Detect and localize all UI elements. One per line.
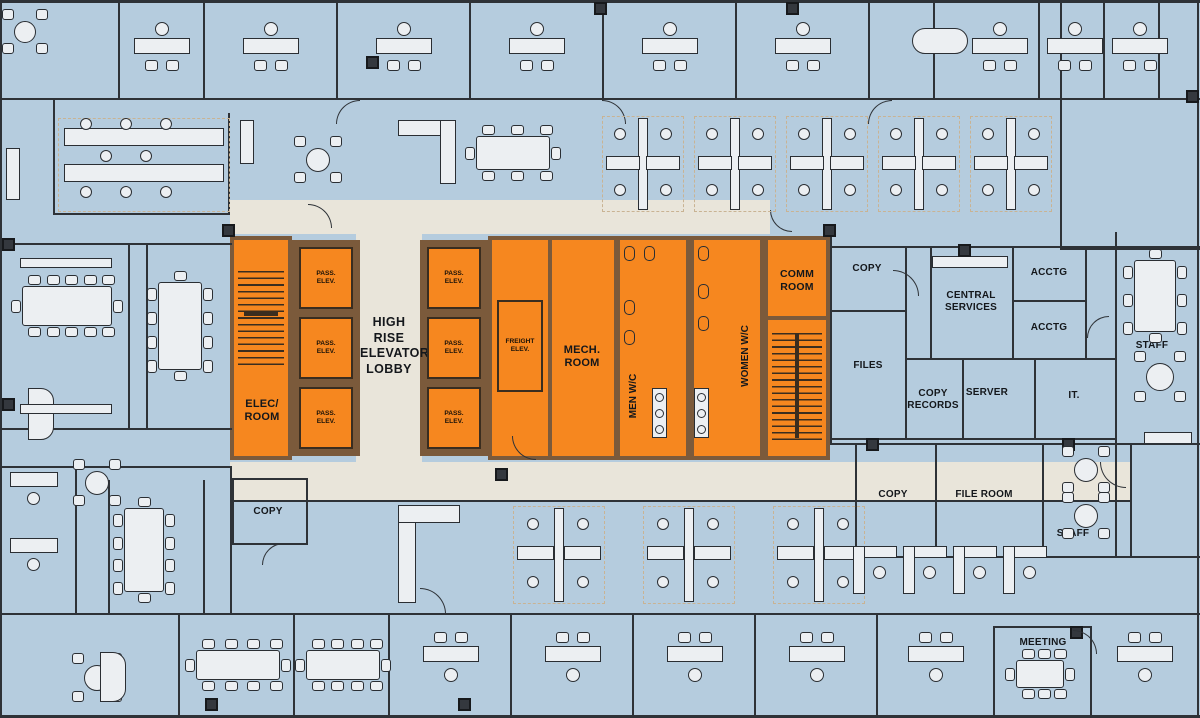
sink-icon — [697, 393, 706, 402]
wall — [735, 0, 737, 98]
wall — [336, 0, 338, 98]
conference-table-icon — [124, 508, 164, 592]
round-table-icon — [1074, 504, 1098, 528]
chair-icon — [203, 360, 213, 373]
chair-icon — [786, 60, 799, 71]
toilet-icon — [698, 246, 709, 261]
chair-icon — [145, 60, 158, 71]
chair-icon — [72, 653, 84, 664]
chair-icon — [185, 659, 195, 672]
wall — [754, 613, 756, 716]
p-desk-icon — [28, 388, 54, 440]
chair-icon — [1149, 632, 1162, 643]
conference-table-icon — [196, 650, 280, 680]
chair-icon — [138, 593, 151, 603]
freight-elevator: FREIGHT ELEV. — [497, 300, 543, 392]
chair-icon — [787, 576, 799, 588]
chair-icon — [203, 288, 213, 301]
wall — [868, 0, 870, 98]
desk-icon — [830, 156, 864, 170]
column-icon — [958, 244, 971, 257]
passenger-elevator: PASS. ELEV. — [299, 387, 353, 449]
table-icon — [912, 28, 968, 54]
bench-desk-icon — [64, 128, 224, 146]
passenger-elevator-label: PASS. ELEV. — [441, 410, 467, 426]
chair-icon — [1038, 649, 1051, 659]
desk-icon — [10, 472, 58, 487]
chair-icon — [798, 184, 810, 196]
chair-icon — [312, 639, 325, 649]
chair-icon — [331, 681, 344, 691]
chair-icon — [2, 43, 14, 54]
wall — [1085, 246, 1087, 358]
chair-icon — [1062, 492, 1074, 503]
chair-icon — [1174, 391, 1186, 402]
mech-room-label: MECH. ROOM — [560, 344, 604, 370]
chair-icon — [752, 128, 764, 140]
bench-desk-icon — [64, 164, 224, 182]
wall — [905, 358, 1117, 360]
wall — [55, 213, 230, 215]
wall — [128, 243, 130, 430]
chair-icon — [520, 60, 533, 71]
chair-icon — [1004, 60, 1017, 71]
reception-desk-icon — [398, 505, 460, 523]
door-arc-icon — [1087, 316, 1109, 338]
passenger-elevator: PASS. ELEV. — [427, 387, 481, 449]
conference-table-icon — [22, 286, 112, 326]
chair-icon — [1123, 60, 1136, 71]
chair-icon — [73, 495, 85, 506]
chair-icon — [165, 537, 175, 550]
chair-icon — [1023, 566, 1036, 579]
acctg-upper-label: ACCTG — [1022, 267, 1076, 279]
chair-icon — [351, 681, 364, 691]
desk-icon — [853, 546, 865, 594]
desk-icon — [243, 38, 299, 54]
chair-icon — [1177, 294, 1187, 307]
chair-icon — [566, 668, 580, 682]
door-arc-icon — [336, 100, 360, 124]
chair-icon — [275, 60, 288, 71]
chair-icon — [800, 632, 813, 643]
sink-icon — [697, 425, 706, 434]
comm-room-label: COMM ROOM — [774, 268, 820, 293]
chair-icon — [203, 312, 213, 325]
chair-icon — [796, 22, 810, 36]
cubicle-spine-icon — [684, 508, 694, 602]
server-label: SERVER — [965, 387, 1009, 399]
chair-icon — [370, 681, 383, 691]
chair-icon — [72, 691, 84, 702]
toilet-icon — [624, 300, 635, 315]
chair-icon — [1058, 60, 1071, 71]
chair-icon — [983, 60, 996, 71]
conference-table-icon — [1016, 660, 1064, 688]
wall — [830, 443, 1200, 445]
wall — [203, 0, 205, 98]
sink-icon — [655, 425, 664, 434]
chair-icon — [73, 459, 85, 470]
desk-icon — [376, 38, 432, 54]
wall — [510, 613, 512, 716]
chair-icon — [109, 495, 121, 506]
chair-icon — [312, 681, 325, 691]
chair-icon — [155, 22, 169, 36]
conference-table-icon — [158, 282, 202, 370]
chair-icon — [109, 459, 121, 470]
wall — [0, 0, 2, 718]
chair-icon — [1022, 649, 1035, 659]
chair-icon — [27, 558, 40, 571]
passenger-elevator: PASS. ELEV. — [299, 247, 353, 309]
cubicle-spine-icon — [554, 508, 564, 602]
chair-icon — [381, 659, 391, 672]
chair-icon — [1062, 446, 1074, 457]
copy-left-label: COPY — [246, 506, 290, 518]
chair-icon — [482, 125, 495, 135]
chair-icon — [165, 514, 175, 527]
chair-icon — [113, 514, 123, 527]
column-icon — [222, 224, 235, 237]
passenger-elevator-label: PASS. ELEV. — [313, 410, 339, 426]
freight-elevator-label: FREIGHT ELEV. — [504, 338, 536, 354]
chair-icon — [113, 537, 123, 550]
column-icon — [823, 224, 836, 237]
door-arc-icon — [262, 543, 284, 565]
desk-icon — [1047, 38, 1103, 54]
chair-icon — [65, 327, 78, 337]
toilet-icon — [624, 330, 635, 345]
wall — [935, 443, 937, 558]
desk-icon — [667, 646, 723, 662]
column-icon — [786, 2, 799, 15]
chair-icon — [936, 128, 948, 140]
wall — [930, 246, 932, 358]
desk-icon — [972, 38, 1028, 54]
chair-icon — [527, 518, 539, 530]
wall — [0, 243, 232, 245]
chair-icon — [202, 639, 215, 649]
copy-records-label: COPY RECORDS — [904, 388, 962, 412]
chair-icon — [1134, 391, 1146, 402]
desk-icon — [642, 38, 698, 54]
copy-upper-label: COPY — [845, 263, 889, 275]
conference-table-icon — [1134, 260, 1176, 332]
desk-icon — [606, 156, 640, 170]
chair-icon — [370, 639, 383, 649]
credenza-icon — [20, 404, 112, 414]
chair-icon — [455, 632, 468, 643]
chair-icon — [1054, 689, 1067, 699]
chair-icon — [165, 559, 175, 572]
chair-icon — [890, 184, 902, 196]
desk-icon — [694, 546, 731, 560]
wall — [178, 613, 180, 716]
desk-icon — [953, 546, 965, 594]
chair-icon — [657, 576, 669, 588]
wall — [0, 613, 1200, 615]
chair-icon — [84, 327, 97, 337]
chair-icon — [1062, 528, 1074, 539]
desk-icon — [903, 546, 915, 594]
chair-icon — [225, 639, 238, 649]
column-icon — [2, 398, 15, 411]
chair-icon — [1123, 294, 1133, 307]
desk-icon — [1112, 38, 1168, 54]
chair-icon — [844, 184, 856, 196]
credenza-icon — [20, 258, 112, 268]
chair-icon — [147, 312, 157, 325]
chair-icon — [387, 60, 400, 71]
chair-icon — [397, 22, 411, 36]
passenger-elevator-label: PASS. ELEV. — [441, 340, 467, 356]
desk-icon — [646, 156, 680, 170]
chair-icon — [940, 632, 953, 643]
chair-icon — [36, 43, 48, 54]
meeting-label: MEETING — [1012, 637, 1074, 649]
chair-icon — [120, 186, 132, 198]
chair-icon — [923, 566, 936, 579]
chair-icon — [247, 639, 260, 649]
chair-icon — [444, 668, 458, 682]
chair-icon — [1054, 649, 1067, 659]
elec-room-label: ELEC/ ROOM — [242, 398, 282, 424]
chair-icon — [120, 118, 132, 130]
chair-icon — [807, 60, 820, 71]
wall — [832, 310, 907, 312]
chair-icon — [540, 171, 553, 181]
chair-icon — [1098, 446, 1110, 457]
chair-icon — [1138, 668, 1152, 682]
round-table-icon — [306, 148, 330, 172]
wall — [1130, 443, 1132, 558]
wall — [232, 543, 308, 545]
wall — [118, 0, 120, 98]
chair-icon — [294, 172, 306, 183]
floor-plan: ELEC/ ROOM HIGH RISE ELEVATOR LOBBY FREI… — [0, 0, 1200, 718]
desk-icon — [882, 156, 916, 170]
chair-icon — [707, 518, 719, 530]
chair-icon — [1079, 60, 1092, 71]
wall — [1115, 232, 1117, 558]
chair-icon — [1177, 266, 1187, 279]
chair-icon — [993, 22, 1007, 36]
chair-icon — [84, 275, 97, 285]
conference-table-icon — [306, 650, 380, 680]
chair-icon — [660, 184, 672, 196]
chair-icon — [254, 60, 267, 71]
chair-icon — [873, 566, 886, 579]
wall — [53, 98, 55, 215]
desk-icon — [10, 538, 58, 553]
passenger-elevator: PASS. ELEV. — [299, 317, 353, 379]
column-icon — [458, 698, 471, 711]
chair-icon — [890, 128, 902, 140]
chair-icon — [663, 22, 677, 36]
high-rise-lobby-label: HIGH RISE ELEVATOR LOBBY — [360, 315, 418, 378]
wall — [1103, 0, 1105, 98]
chair-icon — [1133, 22, 1147, 36]
cubicle-spine-icon — [814, 508, 824, 602]
wall — [876, 613, 878, 716]
column-icon — [2, 238, 15, 251]
shelf-icon — [932, 256, 1008, 268]
chair-icon — [331, 639, 344, 649]
chair-icon — [65, 275, 78, 285]
door-arc-icon — [1073, 630, 1097, 654]
chair-icon — [577, 632, 590, 643]
passenger-elevator: PASS. ELEV. — [427, 247, 481, 309]
chair-icon — [551, 147, 561, 160]
chair-icon — [36, 9, 48, 20]
column-icon — [205, 698, 218, 711]
chair-icon — [688, 668, 702, 682]
wall — [632, 613, 634, 716]
chair-icon — [936, 184, 948, 196]
chair-icon — [982, 128, 994, 140]
chair-icon — [527, 576, 539, 588]
chair-icon — [1068, 22, 1082, 36]
passenger-elevator: PASS. ELEV. — [427, 317, 481, 379]
wall — [1012, 300, 1085, 302]
chair-icon — [1028, 184, 1040, 196]
wall — [830, 232, 832, 443]
chair-icon — [434, 632, 447, 643]
wall — [306, 478, 308, 545]
passenger-elevator-label: PASS. ELEV. — [313, 270, 339, 286]
chair-icon — [147, 288, 157, 301]
toilet-icon — [698, 284, 709, 299]
desk-icon — [647, 546, 684, 560]
comm-stair-divider — [766, 316, 828, 320]
chair-icon — [707, 576, 719, 588]
desk-icon — [790, 156, 824, 170]
desk-icon — [974, 156, 1008, 170]
chair-icon — [511, 171, 524, 181]
chair-icon — [47, 275, 60, 285]
chair-icon — [678, 632, 691, 643]
chair-icon — [174, 271, 187, 281]
passenger-elevator-label: PASS. ELEV. — [313, 340, 339, 356]
desk-icon — [908, 646, 964, 662]
desk-icon — [789, 646, 845, 662]
chair-icon — [530, 22, 544, 36]
chair-icon — [140, 150, 152, 162]
chair-icon — [102, 275, 115, 285]
desk-icon — [1117, 646, 1173, 662]
desk-icon — [134, 38, 190, 54]
chair-icon — [138, 497, 151, 507]
chair-icon — [465, 147, 475, 160]
chair-icon — [1028, 128, 1040, 140]
chair-icon — [330, 172, 342, 183]
chair-icon — [113, 300, 123, 313]
chair-icon — [147, 360, 157, 373]
freight-mech-divider — [548, 238, 552, 458]
desk-icon — [6, 148, 20, 200]
wall — [0, 98, 1200, 100]
toilet-icon — [624, 246, 635, 261]
chair-icon — [330, 136, 342, 147]
chair-icon — [295, 659, 305, 672]
round-table-icon — [1074, 458, 1098, 482]
toilet-icon — [698, 316, 709, 331]
column-icon — [495, 468, 508, 481]
chair-icon — [844, 128, 856, 140]
wall — [1034, 358, 1036, 440]
chair-icon — [264, 22, 278, 36]
sink-icon — [697, 409, 706, 418]
wall — [469, 0, 471, 98]
l-desk-icon — [440, 120, 456, 184]
central-services-label: CENTRAL SERVICES — [940, 290, 1002, 314]
column-icon — [594, 2, 607, 15]
chair-icon — [929, 668, 943, 682]
chair-icon — [919, 632, 932, 643]
desk-icon — [423, 646, 479, 662]
chair-icon — [270, 681, 283, 691]
passenger-elevator-label: PASS. ELEV. — [441, 270, 467, 286]
chair-icon — [113, 559, 123, 572]
door-arc-icon — [420, 588, 446, 614]
chair-icon — [577, 576, 589, 588]
sink-icon — [655, 409, 664, 418]
chair-icon — [577, 518, 589, 530]
chair-icon — [660, 128, 672, 140]
chair-icon — [202, 681, 215, 691]
chair-icon — [270, 639, 283, 649]
chair-icon — [556, 632, 569, 643]
chair-icon — [2, 9, 14, 20]
chair-icon — [1134, 351, 1146, 362]
chair-icon — [482, 171, 495, 181]
chair-icon — [1065, 668, 1075, 681]
wall — [203, 480, 205, 615]
chair-icon — [80, 186, 92, 198]
wall — [1060, 248, 1200, 250]
chair-icon — [1022, 689, 1035, 699]
chair-icon — [674, 60, 687, 71]
chair-icon — [798, 128, 810, 140]
chair-icon — [653, 60, 666, 71]
wall — [232, 478, 308, 480]
round-table-icon — [14, 21, 36, 43]
column-icon — [366, 56, 379, 69]
desk-icon — [777, 546, 814, 560]
chair-icon — [160, 118, 172, 130]
wall — [232, 478, 234, 545]
column-icon — [1186, 90, 1199, 103]
desk-icon — [738, 156, 772, 170]
wall — [993, 626, 995, 716]
wall — [230, 500, 1130, 502]
column-icon — [866, 438, 879, 451]
wall — [1012, 246, 1014, 358]
chair-icon — [706, 128, 718, 140]
chair-icon — [294, 136, 306, 147]
conference-table-icon — [476, 136, 550, 170]
desk-icon — [1003, 546, 1015, 594]
chair-icon — [113, 582, 123, 595]
chair-icon — [160, 186, 172, 198]
chair-icon — [752, 184, 764, 196]
chair-icon — [47, 327, 60, 337]
acctg-lower-label: ACCTG — [1022, 322, 1076, 334]
stair-west-rail — [244, 312, 278, 316]
chair-icon — [225, 681, 238, 691]
desk-icon — [545, 646, 601, 662]
